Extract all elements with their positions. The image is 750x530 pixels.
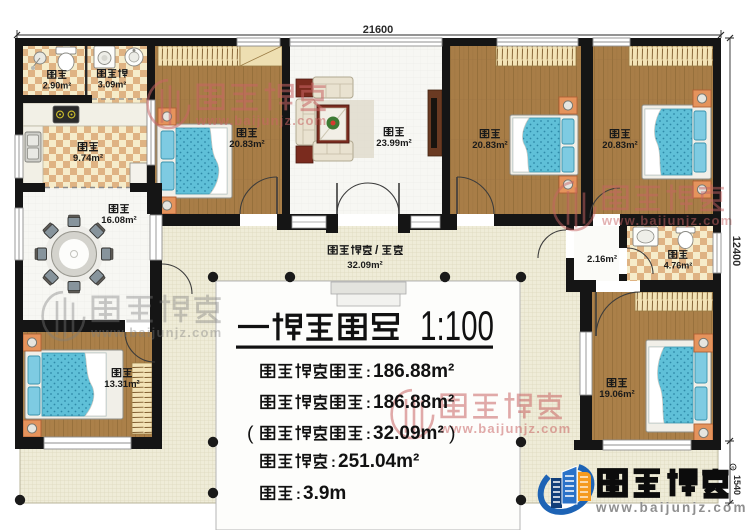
svg-text:www.baijunjz.com: www.baijunjz.com [601,213,733,228]
svg-text:186.88m²: 186.88m² [373,361,454,382]
svg-text:www.baijunjz.com: www.baijunjz.com [439,421,571,436]
svg-text:1540: 1540 [732,475,742,495]
svg-text:32.09m²: 32.09m² [373,423,444,444]
svg-text:9.74m²: 9.74m² [73,153,103,164]
svg-text:12400: 12400 [730,236,742,267]
svg-text:21600: 21600 [363,24,394,36]
svg-text:www.baijunjz.com: www.baijunjz.com [595,500,748,515]
svg-text:13.31m²: 13.31m² [104,379,139,390]
svg-text:2.90m²: 2.90m² [43,81,72,91]
svg-text::: : [366,396,371,412]
svg-text:32.09m²: 32.09m² [347,260,382,271]
svg-text:www.baijunjz.com: www.baijunjz.com [90,325,222,340]
svg-text:20.83m²: 20.83m² [602,140,637,151]
svg-text::: : [296,487,301,503]
svg-text::: : [366,365,371,381]
svg-text:2.16m²: 2.16m² [587,254,617,265]
svg-text:20.83m²: 20.83m² [472,140,507,151]
svg-text:4.76m²: 4.76m² [664,261,693,271]
svg-text:251.04m²: 251.04m² [338,451,419,472]
svg-text:3.09m²: 3.09m² [98,80,127,90]
svg-text:23.99m²: 23.99m² [376,138,411,149]
svg-text:186.88m²: 186.88m² [373,392,454,413]
svg-text:(: ( [247,423,254,445]
svg-text::: : [331,455,336,471]
svg-text:20.83m²: 20.83m² [229,139,264,150]
svg-text:19.06m²: 19.06m² [599,389,634,400]
svg-text:16.08m²: 16.08m² [101,215,136,226]
svg-text:3.9m: 3.9m [303,483,346,504]
svg-text:www.baijunjz.com: www.baijunjz.com [195,113,327,128]
svg-text:): ) [449,423,456,445]
svg-text:1:100: 1:100 [420,302,494,349]
svg-text::: : [366,427,371,443]
